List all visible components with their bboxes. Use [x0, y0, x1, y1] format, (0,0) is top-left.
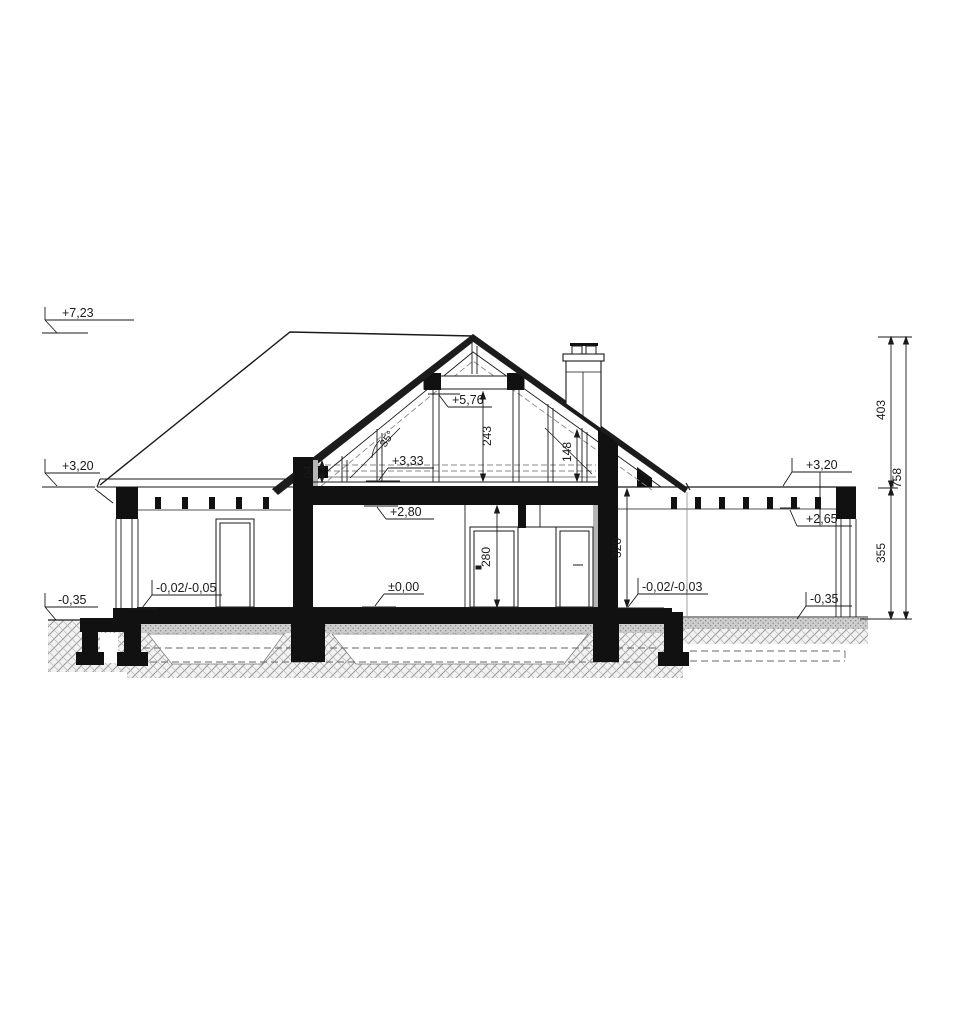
- level-label-eaves-right: +3,20: [806, 458, 838, 472]
- soil-hatch-right: [683, 628, 868, 644]
- section-drawing: +7,23 +3,20 -0,35 -0,02/-0,05 ±0,00 +2,8…: [0, 0, 956, 1014]
- level-label-ceiling-right: +2,65: [806, 512, 838, 526]
- level-label-grade-right: -0,35: [810, 592, 839, 606]
- left-wall-footing-pad: [117, 652, 148, 666]
- attic-roof-structure: [272, 334, 690, 495]
- level-label-ridge: +7,23: [62, 306, 94, 320]
- level-label-collar: +5,76: [452, 393, 484, 407]
- subbase-layer: [141, 624, 291, 633]
- level-label-ground-ceiling: +2,80: [390, 505, 422, 519]
- architectural-section-sheet: +7,23 +3,20 -0,35 -0,02/-0,05 ±0,00 +2,8…: [0, 0, 956, 1014]
- subbase-layer: [325, 624, 593, 633]
- left-exterior-wall: [116, 519, 138, 608]
- dim-label-attic-height: 243: [480, 426, 494, 446]
- central-door-2: [556, 527, 593, 607]
- level-label-attic-floor: +3,33: [392, 454, 424, 468]
- pavement-right: [683, 618, 868, 629]
- level-label-eaves-left: +3,20: [62, 459, 94, 473]
- dim-label-total-height: 758: [890, 468, 904, 488]
- left-fascia: [97, 479, 295, 487]
- right-edge-footing-pad: [658, 652, 689, 666]
- left-wing: [95, 332, 473, 608]
- left-wing-door: [216, 519, 254, 607]
- dim-label-roof-zone: 403: [874, 400, 888, 420]
- chimney: [563, 343, 604, 429]
- flue-cap: [584, 343, 598, 346]
- dim-label-knee-wall: 64: [301, 465, 315, 479]
- central-right-wall: [598, 429, 618, 608]
- level-label-floor-left-wing: -0,02/-0,05: [156, 581, 217, 595]
- flue-cap: [570, 343, 584, 346]
- excavation-wedge-center: [332, 634, 588, 664]
- right-wall-lintel: [836, 487, 856, 519]
- level-label-floor-right-wing: -0,02/-0,03: [642, 580, 703, 594]
- dim-label-wall-zone: 355: [874, 543, 888, 563]
- eaves-corner-line: [95, 489, 113, 503]
- roof-pitch-label: 35°: [378, 429, 397, 450]
- central-door-1: [470, 527, 518, 607]
- terrace-footing-pad: [76, 652, 104, 665]
- attic-floor-slab: [293, 486, 618, 505]
- marker-attic-floor: [366, 468, 434, 481]
- right-exterior-wall: [836, 519, 856, 617]
- left-ceiling-joists: [155, 497, 269, 509]
- floor-slab: [113, 608, 672, 624]
- door-lintel-line: [526, 505, 556, 527]
- left-wall-lintel: [116, 487, 138, 519]
- chimney-flue: [586, 346, 596, 354]
- interior-wall-stub: [518, 505, 526, 528]
- level-markers: [42, 307, 852, 620]
- subbase-layer: [619, 624, 664, 633]
- excavation-dashed-line-right: [690, 651, 845, 661]
- purlin-post: [637, 467, 652, 487]
- level-label-grade-left: -0,35: [58, 593, 87, 607]
- dim-label-door-height: 280: [479, 547, 493, 567]
- marker-ground-floor: [362, 594, 424, 607]
- dim-label-storey-height: 320: [610, 538, 624, 558]
- ground-and-foundation: [48, 608, 868, 678]
- dim-label-rafter: 148: [560, 442, 574, 462]
- right-roof-beams: [671, 497, 821, 509]
- wall-finish-layer: [593, 505, 598, 608]
- level-label-ground-floor: ±0,00: [388, 580, 419, 594]
- excavation-wedge-left: [148, 634, 284, 664]
- chimney-flue: [572, 346, 582, 354]
- chimney-cap: [563, 354, 604, 361]
